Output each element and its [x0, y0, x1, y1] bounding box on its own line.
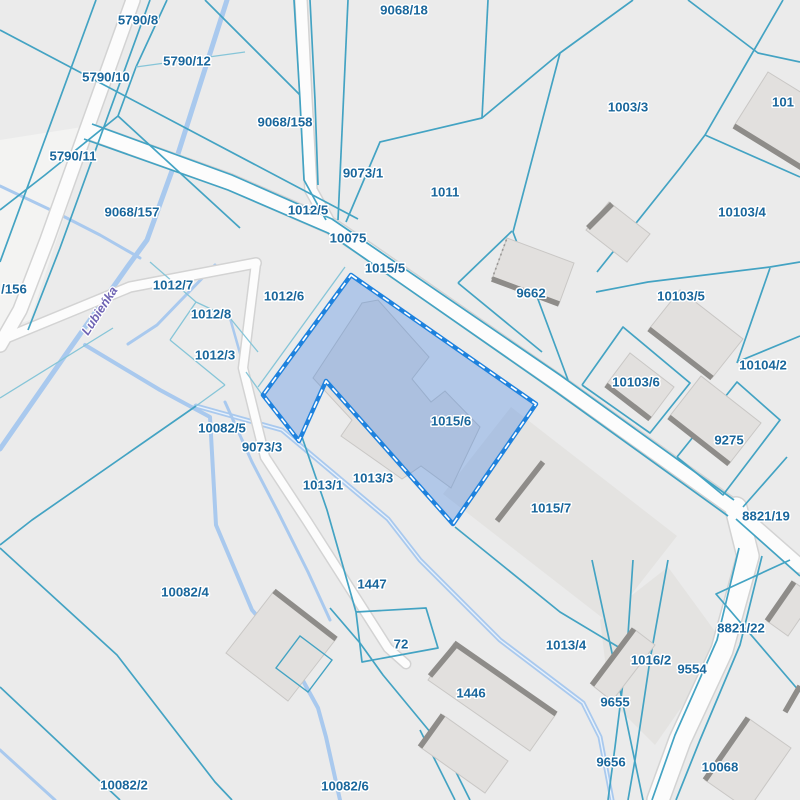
parcel-label: 1013/4 — [546, 638, 587, 653]
parcel-label: 1012/6 — [264, 289, 304, 304]
parcel-label: 1015/6 — [431, 414, 471, 429]
building-shadow-edge — [785, 686, 800, 712]
parcel-label: 1012/7 — [153, 278, 193, 293]
parcel-label: 9656 — [596, 755, 625, 770]
cadastral-map-viewport[interactable]: 5790/89068/185790/125790/101003/31015790… — [0, 0, 800, 800]
parcel-label: 5790/8 — [118, 13, 158, 28]
parcel-label: 1003/3 — [608, 100, 648, 115]
parcel-label: 1015/7 — [531, 501, 571, 516]
parcel-label: 72 — [394, 637, 409, 652]
parcel-boundary-line — [596, 262, 800, 292]
parcel-boundary-line — [513, 0, 633, 380]
parcel-label: 10082/2 — [100, 778, 148, 793]
parcel-label: 9073/3 — [242, 440, 282, 455]
parcel-boundary-line — [0, 406, 196, 545]
parcel-label: 10104/2 — [739, 358, 787, 373]
stream — [0, 750, 55, 800]
parcel-label: 5790/10 — [82, 70, 130, 85]
parcel-label: 10075 — [330, 231, 367, 246]
parcel-label: 5790/12 — [163, 54, 211, 69]
parcel-label: 8821/19 — [742, 509, 790, 524]
building — [586, 202, 650, 262]
parcel-boundary-line — [482, 0, 488, 118]
parcel-label: 10068 — [702, 760, 739, 775]
parcel-label: 9068/157 — [104, 205, 159, 220]
parcel-label: 10082/4 — [161, 585, 209, 600]
parcel-boundary-line — [737, 268, 770, 363]
parcel-label: 1015/5 — [365, 261, 405, 276]
cadastral-map-canvas[interactable]: 5790/89068/185790/125790/101003/31015790… — [0, 0, 800, 800]
parcel-label: 10082/6 — [321, 779, 369, 794]
building — [226, 591, 336, 701]
parcel-label: 9073/1 — [343, 166, 383, 181]
parcel-label: 1446 — [456, 686, 485, 701]
parcel-label: 9068/158 — [257, 115, 312, 130]
parcel-label: 1013/1 — [303, 478, 343, 493]
parcel-boundary-line — [205, 0, 300, 95]
building — [767, 582, 800, 636]
parcel-label: 9554 — [677, 662, 707, 677]
parcel-boundary-line — [743, 457, 787, 507]
parcel-label: 101 — [772, 95, 794, 110]
parcel-label: 9275 — [714, 433, 743, 448]
parcel-label: 10082/5 — [198, 421, 246, 436]
parcel-boundary-line — [196, 385, 225, 406]
parcel-label: 1016/2 — [631, 653, 671, 668]
parcel-boundary-line — [688, 0, 800, 62]
parcel-label: 9068/18 — [380, 3, 428, 18]
parcel-label: 10103/6 — [612, 375, 660, 390]
parcel-label: 1013/3 — [353, 471, 393, 486]
parcel-label: 1012/5 — [288, 203, 328, 218]
parcel-label: 1011 — [431, 185, 460, 200]
parcel-label: 1012/8 — [191, 307, 231, 322]
parcel-label: 8821/22 — [717, 621, 765, 636]
parcel-label: 9662 — [516, 286, 545, 301]
parcel-label: 9655 — [600, 695, 629, 710]
building — [734, 72, 800, 168]
parcel-label: 5790/11 — [50, 149, 97, 164]
parcel-boundary-line — [338, 0, 348, 220]
parcel-label: 10103/5 — [657, 289, 705, 304]
parcel-label: 1447 — [357, 577, 386, 592]
parcel-label: /156 — [1, 282, 27, 297]
parcel-label: 1012/3 — [195, 348, 235, 363]
parcel-label: 10103/4 — [718, 205, 766, 220]
